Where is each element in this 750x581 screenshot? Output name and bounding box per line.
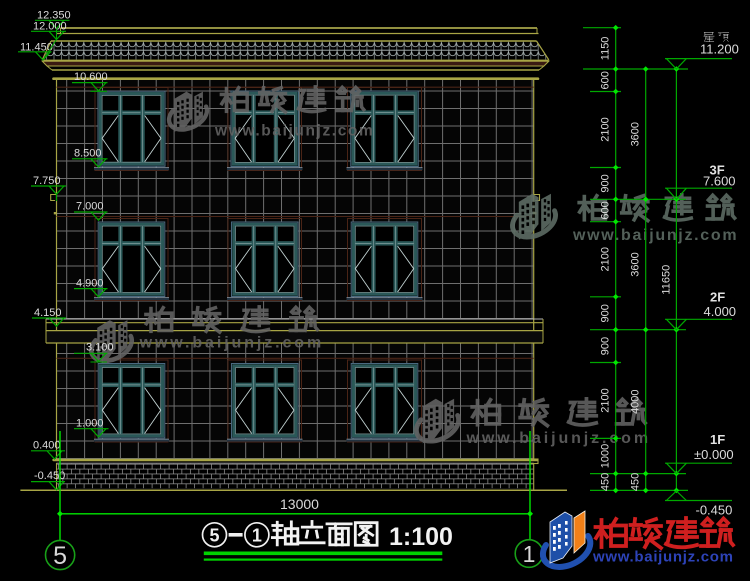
svg-text:www.baijunjz.com: www.baijunjz.com [592, 549, 734, 566]
svg-text:www.baijunjz.com: www.baijunjz.com [139, 335, 325, 352]
svg-text:11.200: 11.200 [700, 42, 739, 57]
svg-text:www.baijunjz.com: www.baijunjz.com [466, 430, 652, 447]
svg-text:7.000: 7.000 [76, 201, 104, 213]
svg-text:2F: 2F [710, 290, 725, 305]
svg-text:2100: 2100 [600, 247, 612, 271]
svg-text:0.400: 0.400 [33, 440, 61, 452]
svg-text:600: 600 [600, 201, 612, 219]
svg-text:3600: 3600 [630, 122, 642, 146]
svg-text:13000: 13000 [280, 496, 319, 512]
svg-text:4000: 4000 [630, 389, 642, 413]
svg-text:1F: 1F [710, 432, 725, 447]
svg-text:450: 450 [630, 473, 642, 491]
svg-text:www.baijunjz.com: www.baijunjz.com [572, 227, 738, 244]
svg-text:1000: 1000 [600, 444, 612, 468]
svg-text:1150: 1150 [600, 37, 612, 61]
svg-text:11650: 11650 [660, 265, 672, 295]
svg-text:5: 5 [209, 526, 219, 546]
svg-text:900: 900 [600, 304, 612, 322]
svg-text:±0.000: ±0.000 [694, 447, 734, 462]
svg-text:900: 900 [600, 337, 612, 355]
svg-text:4.900: 4.900 [76, 278, 104, 290]
svg-text:-0.450: -0.450 [696, 503, 733, 518]
svg-text:4.000: 4.000 [704, 304, 737, 319]
svg-text:1: 1 [252, 526, 262, 546]
svg-text:600: 600 [600, 71, 612, 89]
svg-text:450: 450 [600, 473, 612, 491]
svg-text:2100: 2100 [600, 388, 612, 412]
svg-text:www.baijunjz.com: www.baijunjz.com [214, 123, 374, 140]
svg-text:3600: 3600 [630, 252, 642, 276]
svg-text:5: 5 [53, 542, 67, 570]
svg-text:1.000: 1.000 [76, 418, 104, 430]
svg-text:1:100: 1:100 [389, 523, 453, 551]
svg-text:3.100: 3.100 [86, 341, 114, 353]
svg-text:8.500: 8.500 [74, 148, 102, 160]
svg-text:4.150: 4.150 [34, 307, 62, 319]
svg-text:7.600: 7.600 [703, 174, 736, 189]
svg-text:1: 1 [523, 541, 536, 567]
svg-text:900: 900 [600, 174, 612, 192]
svg-text:10.600: 10.600 [74, 71, 108, 83]
svg-text:7.750: 7.750 [33, 175, 61, 187]
svg-text:12.000: 12.000 [33, 20, 67, 32]
svg-text:2100: 2100 [600, 117, 612, 141]
